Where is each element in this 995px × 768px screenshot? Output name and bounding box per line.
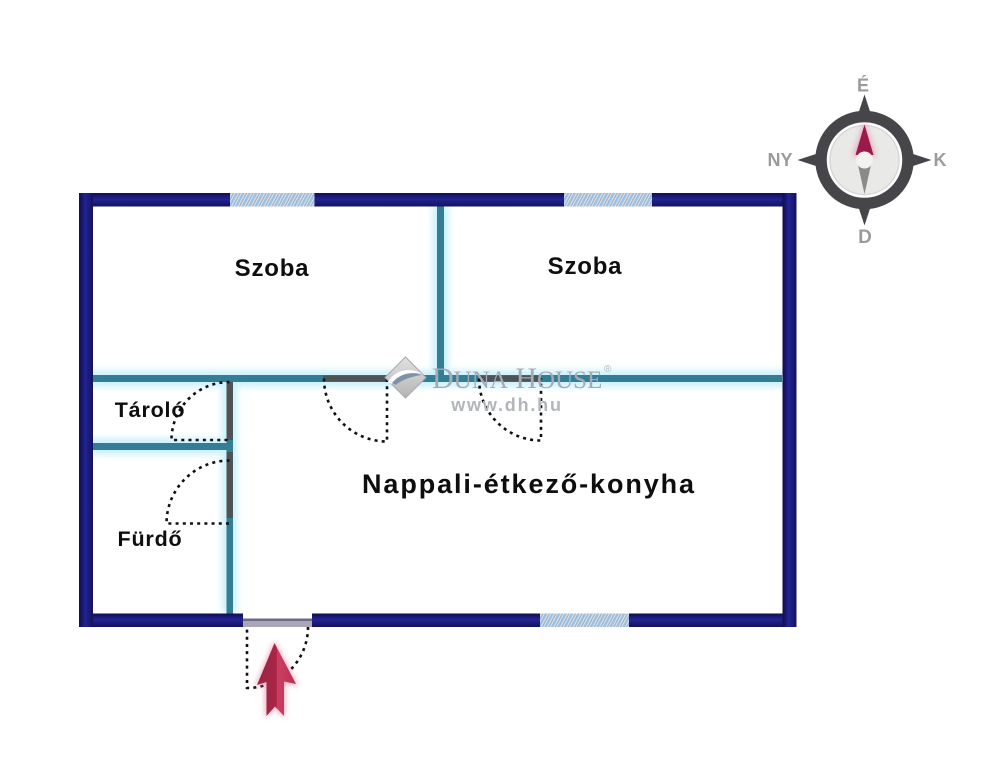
- svg-text:Tároló: Tároló: [115, 398, 186, 422]
- svg-text:Szoba: Szoba: [235, 255, 310, 282]
- svg-text:É: É: [857, 75, 869, 96]
- svg-text:www.dh.hu: www.dh.hu: [450, 395, 563, 415]
- svg-text:D: D: [858, 227, 872, 248]
- svg-text:Nappali-étkező-konyha: Nappali-étkező-konyha: [362, 469, 696, 499]
- svg-text:NY: NY: [767, 150, 792, 170]
- svg-text:K: K: [934, 150, 947, 170]
- svg-text:Szoba: Szoba: [548, 253, 623, 280]
- svg-text:Fürdő: Fürdő: [118, 527, 183, 551]
- svg-text:DUNA HOUSE: DUNA HOUSE: [432, 362, 602, 395]
- svg-text:®: ®: [604, 364, 612, 375]
